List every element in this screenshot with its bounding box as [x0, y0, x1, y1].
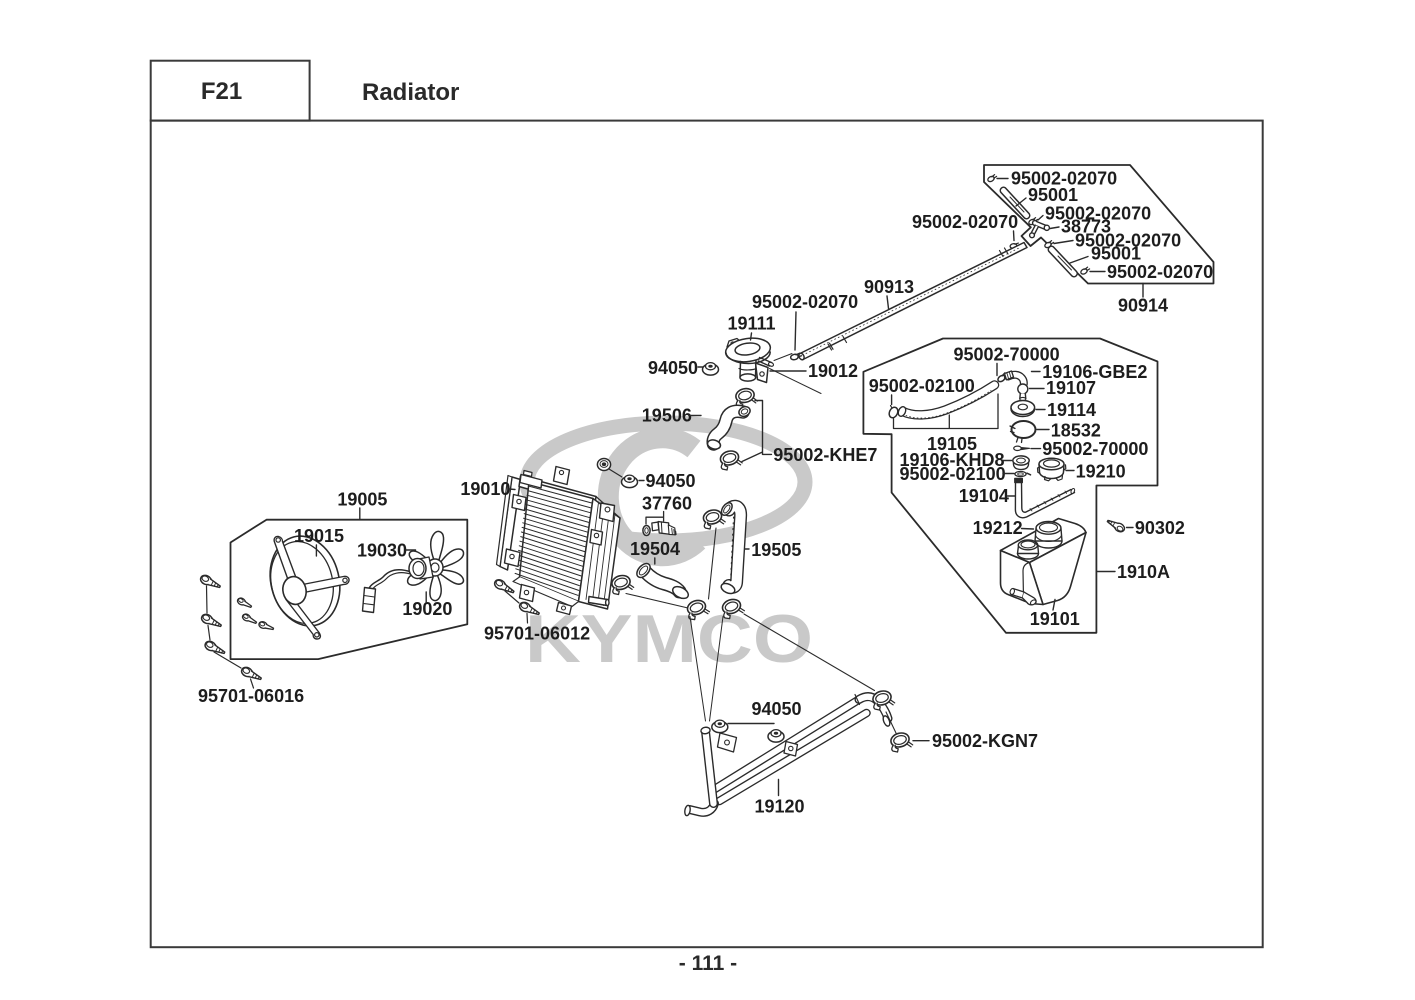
- svg-text:95001: 95001: [1028, 185, 1078, 205]
- svg-text:95002-02070: 95002-02070: [752, 292, 858, 312]
- svg-text:95001: 95001: [1091, 244, 1141, 264]
- svg-text:19114: 19114: [1047, 400, 1096, 420]
- svg-text:19111: 19111: [728, 314, 776, 334]
- svg-text:19505: 19505: [751, 540, 801, 560]
- svg-text:19212: 19212: [973, 518, 1023, 538]
- svg-text:90914: 90914: [1118, 296, 1168, 316]
- svg-text:90913: 90913: [864, 277, 914, 297]
- svg-text:95002-70000: 95002-70000: [1042, 439, 1148, 459]
- svg-text:95701-06016: 95701-06016: [198, 686, 304, 706]
- svg-text:19104: 19104: [959, 486, 1009, 506]
- svg-text:19020: 19020: [402, 599, 452, 619]
- svg-text:19030: 19030: [357, 541, 407, 561]
- svg-text:19506: 19506: [642, 406, 692, 426]
- svg-text:Radiator: Radiator: [362, 79, 459, 106]
- svg-text:19015: 19015: [294, 526, 344, 546]
- svg-text:F21: F21: [201, 78, 242, 105]
- svg-text:95002-02100: 95002-02100: [900, 464, 1006, 484]
- svg-text:95002-KGN7: 95002-KGN7: [932, 731, 1038, 751]
- svg-text:19005: 19005: [337, 490, 387, 510]
- svg-text:37760: 37760: [642, 494, 692, 514]
- svg-text:1910A: 1910A: [1117, 562, 1170, 582]
- svg-text:19107: 19107: [1046, 378, 1096, 398]
- svg-text:- 111 -: - 111 -: [679, 952, 737, 975]
- svg-text:19012: 19012: [808, 361, 858, 381]
- svg-text:18532: 18532: [1051, 421, 1101, 441]
- svg-text:90302: 90302: [1135, 518, 1185, 538]
- svg-text:94050: 94050: [648, 358, 698, 378]
- svg-text:95701-06012: 95701-06012: [484, 624, 590, 644]
- svg-text:19504: 19504: [630, 539, 680, 559]
- svg-text:94050: 94050: [646, 471, 696, 491]
- svg-text:19101: 19101: [1030, 609, 1080, 629]
- svg-text:95002-02100: 95002-02100: [869, 376, 975, 396]
- svg-text:95002-02070: 95002-02070: [1107, 262, 1213, 282]
- svg-text:95002-KHE7: 95002-KHE7: [773, 445, 877, 465]
- svg-text:19120: 19120: [755, 797, 805, 817]
- svg-text:19010: 19010: [460, 479, 510, 499]
- svg-text:19210: 19210: [1076, 462, 1126, 482]
- svg-text:94050: 94050: [752, 699, 802, 719]
- svg-text:95002-02070: 95002-02070: [912, 212, 1018, 232]
